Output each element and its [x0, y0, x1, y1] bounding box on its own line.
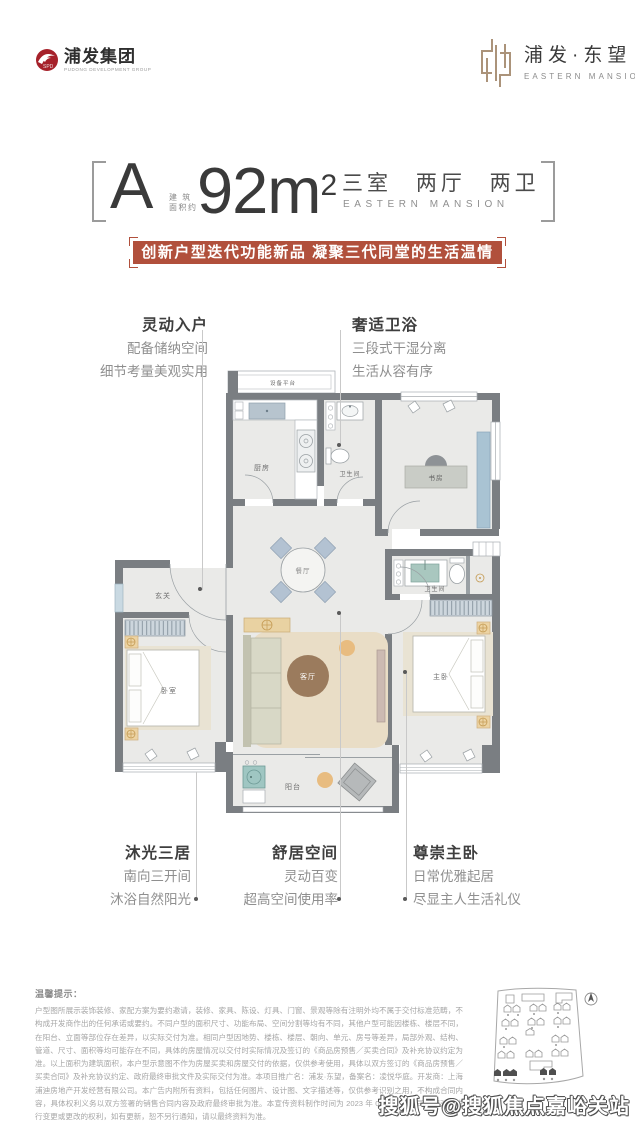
area-superscript: 2 [320, 169, 337, 202]
leader-dot [403, 670, 407, 674]
room-label: 卫生间 [424, 585, 445, 593]
watermark: 搜狐号@搜狐焦点嘉峪关站 [378, 1090, 630, 1119]
callout-space: 舒居空间 灵动百变 超高空间使用率 [200, 842, 338, 911]
living-furniture [243, 618, 388, 748]
leader-dot [337, 443, 341, 447]
group-logo-icon: SPD [34, 47, 60, 75]
title-bracket-left [92, 161, 106, 222]
room-label: 厨房 [254, 463, 270, 472]
site-plan-map [482, 985, 600, 1093]
disclaimer-title: 温馨提示： [35, 987, 463, 1000]
leader-dot [337, 611, 341, 615]
project-logo: 浦发·东望 EASTERN MANSION [478, 38, 635, 88]
rooms-summary-cn: 三室 两厅 两卫 [342, 167, 540, 197]
leader-dot [194, 897, 198, 901]
floorplan-drawing: 设备平台 厨房 卫生间 书房 玄关 餐厅 卫生间 卧室 客厅 主卧 阳台 [105, 370, 530, 828]
leader-line-space [340, 614, 341, 900]
group-logo-tagline: PUDONG DEVELOPMENT GROUP [64, 67, 151, 72]
leader-line-bath [340, 330, 341, 446]
callout-sunlight: 沐光三居 南向三开间 沐浴自然阳光 [60, 842, 191, 911]
leader-dot [198, 587, 202, 591]
leader-dot [403, 897, 407, 901]
leader-line-master [406, 673, 407, 900]
project-logo-mark [478, 38, 514, 88]
area-note: 建 筑 面积约 [169, 193, 198, 213]
compass-icon [585, 993, 597, 1006]
room-label: 玄关 [155, 591, 171, 600]
leader-dot [337, 897, 341, 901]
room-label: 餐厅 [296, 566, 311, 575]
callout-master: 尊崇主卧 日常优雅起居 尽显主人生活礼仪 [413, 842, 521, 911]
svg-text:SPD: SPD [43, 64, 54, 70]
room-label: 阳台 [285, 782, 301, 791]
room-label: 卧室 [161, 686, 177, 695]
project-logo-tagline: EASTERN MANSION [524, 72, 635, 81]
area-value: 92m2 [197, 153, 337, 224]
floorplan-poster: SPD 浦发集团 PUDONG DEVELOPMENT GROUP 浦发·东望 … [0, 0, 635, 1125]
group-logo: SPD 浦发集团 PUDONG DEVELOPMENT GROUP [34, 47, 151, 75]
room-label: 主卧 [433, 672, 449, 681]
slogan-text: 创新户型迭代功能新品 凝聚三代同堂的生活温情 [133, 241, 502, 264]
leader-line-sunlight [196, 772, 197, 900]
title-bracket-right [541, 161, 555, 222]
project-logo-name: 浦发·东望 [524, 45, 635, 67]
room-label: 客厅 [300, 672, 316, 681]
group-logo-name: 浦发集团 [64, 47, 151, 66]
slogan-banner: 创新户型迭代功能新品 凝聚三代同堂的生活温情 [129, 237, 506, 268]
room-label: 书房 [429, 473, 444, 482]
rooms-summary-en: EASTERN MANSION [343, 199, 509, 210]
unit-letter: A [110, 153, 153, 219]
room-label: 设备平台 [270, 379, 296, 387]
leader-line-entry [202, 330, 203, 590]
room-label: 卫生间 [339, 470, 360, 478]
